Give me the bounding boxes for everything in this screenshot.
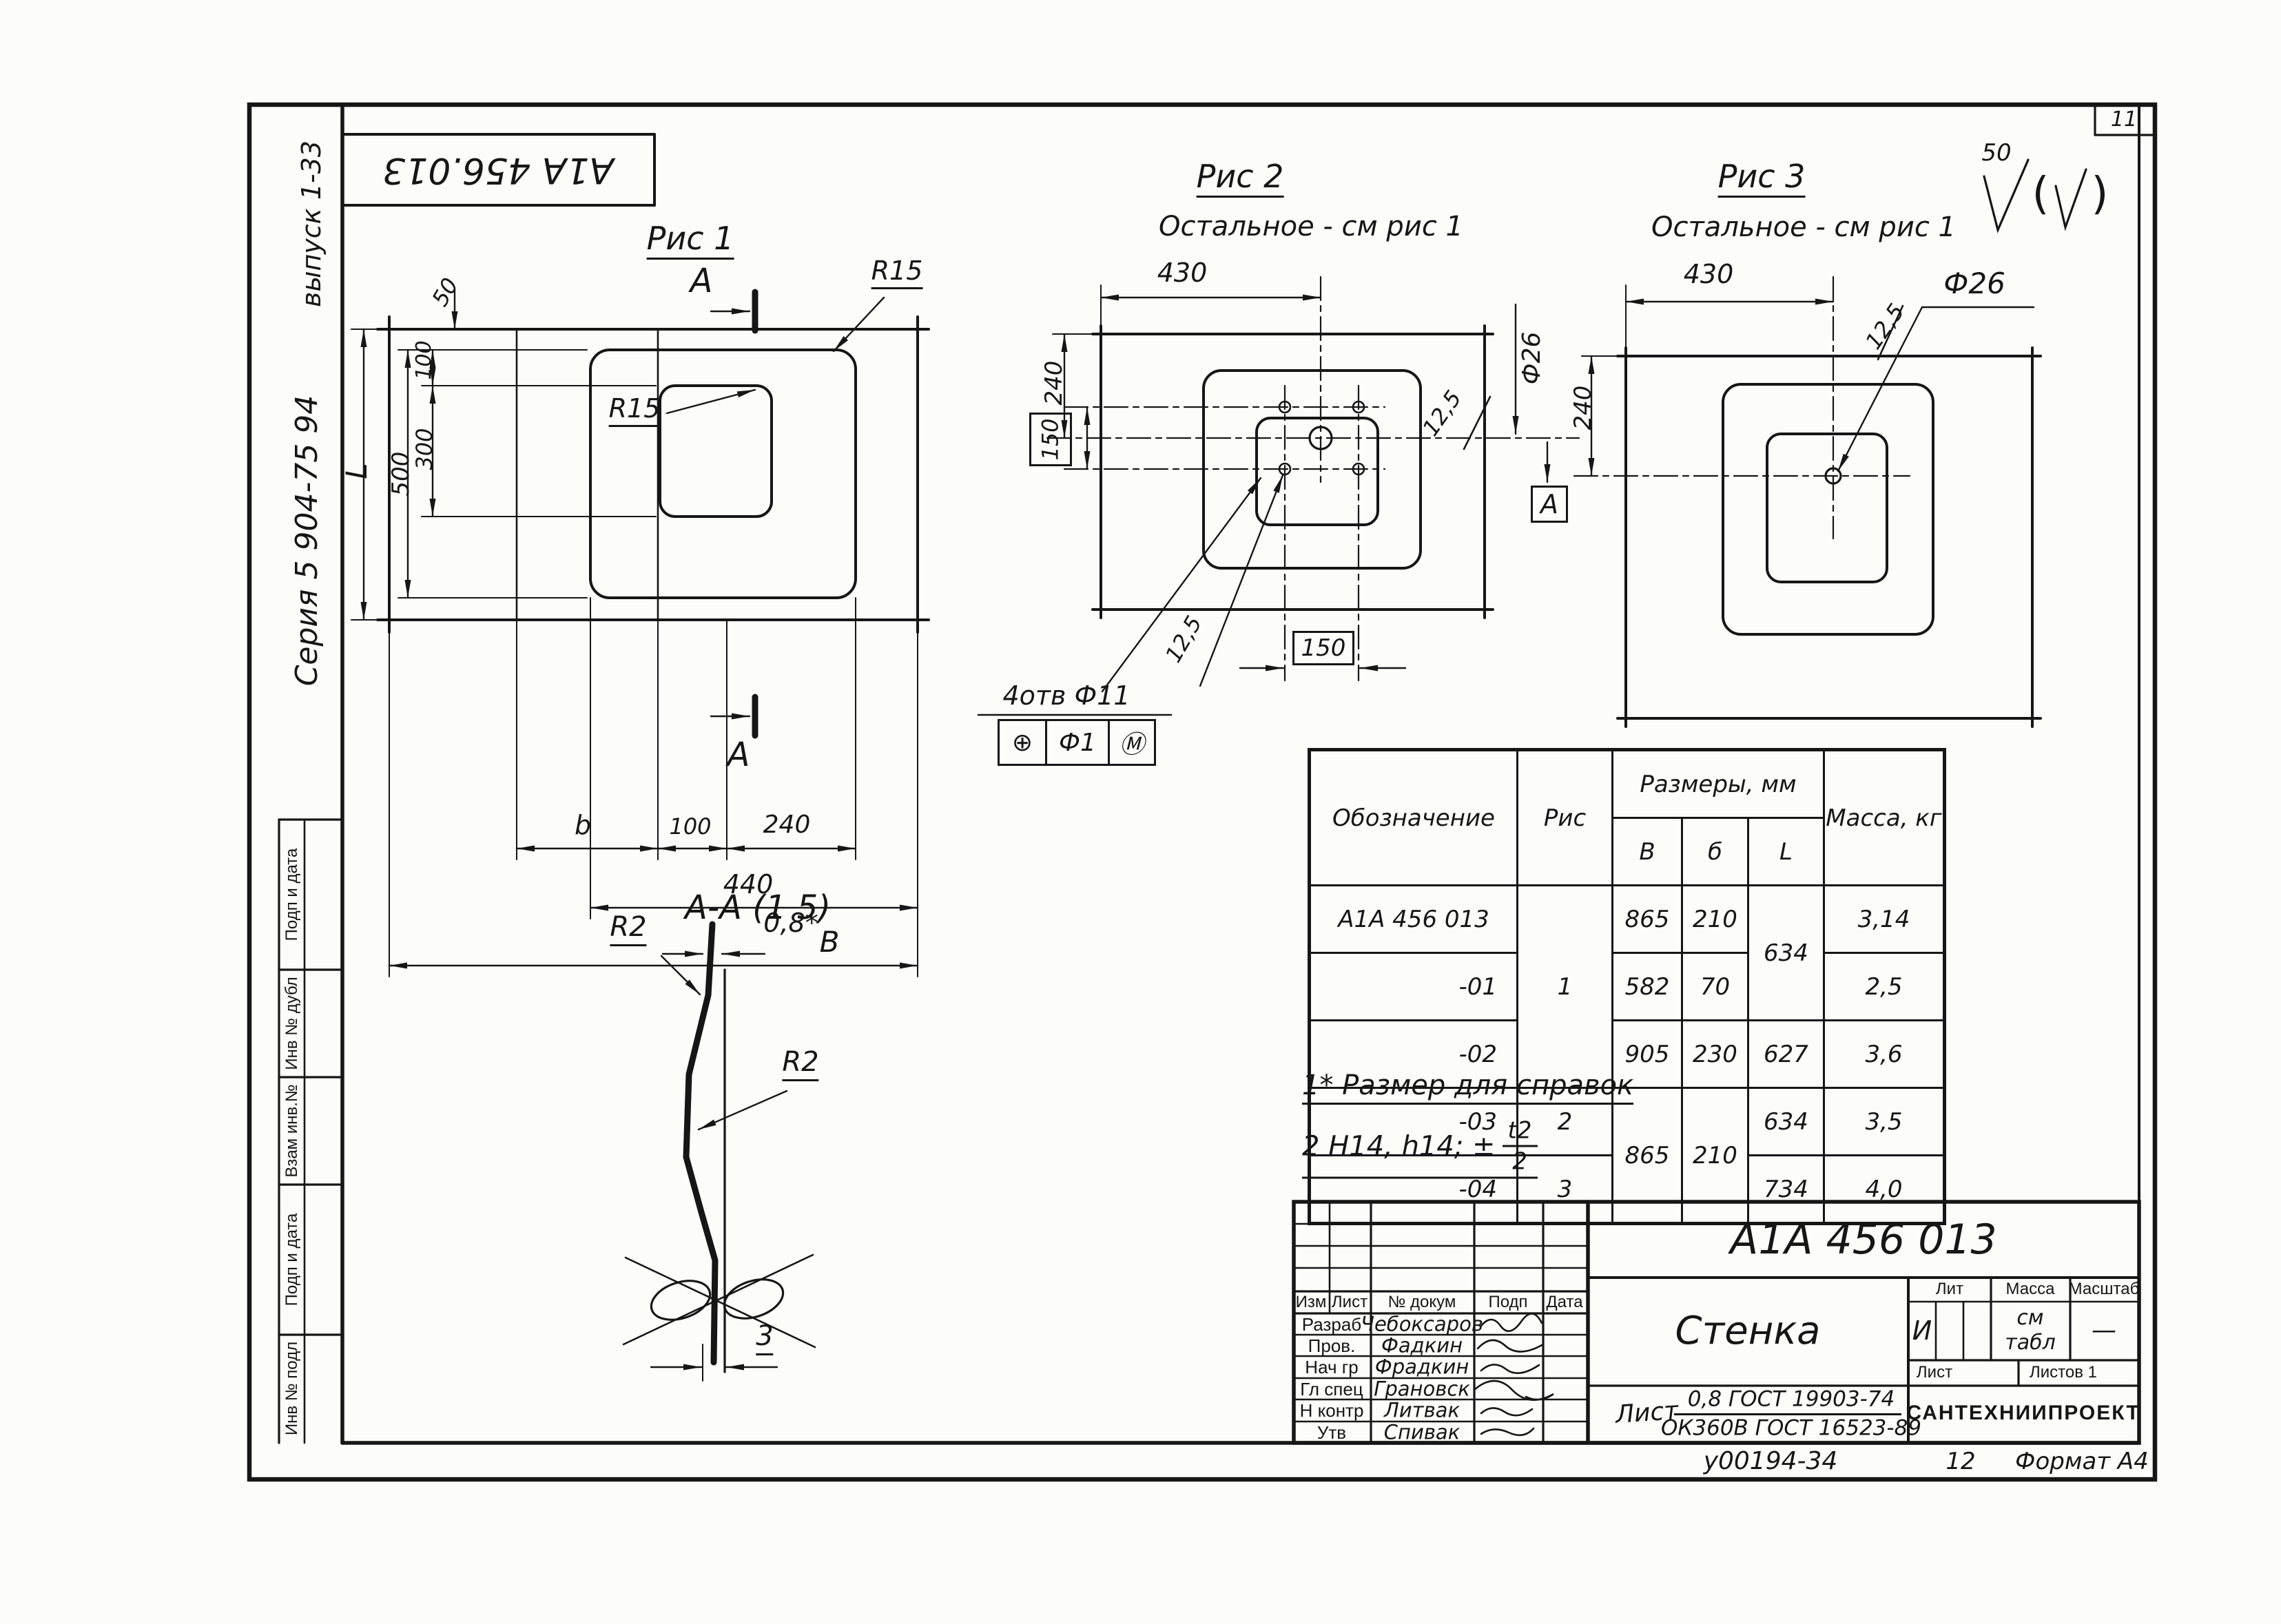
fig1-dim-100-bottom: 100 [669,815,711,837]
cell-mass: 2,5 [1824,953,1945,1021]
cell-designation: -03 [1310,1088,1518,1156]
position-tolerance-icon: ⊕ [1000,721,1045,764]
rev-header-date: Дата [1546,1294,1582,1311]
fig3-dim-430: 430 [1684,261,1734,287]
col-header-fig: Рис [1518,750,1613,886]
fig3-linework [1574,277,2041,727]
fig3-subtitle: Остальное - см рис 1 [1651,214,1956,241]
fig2-dia-26: Ф26 [1520,332,1545,385]
col-header-designation: Обозначение [1310,750,1518,886]
cell-b: 230 [1682,1021,1748,1088]
signature-scribbles [1474,1313,1554,1435]
top-stamp-doc-number: А1А 456.013 [382,152,614,188]
fcf-tolerance-value: Ф1 [1045,721,1108,764]
fig1-dim-300: 300 [413,428,435,470]
cell-B: 865 [1613,1088,1682,1224]
fig3-dia-26: Ф26 [1943,269,2005,298]
cell-mass: 3,6 [1824,1021,1945,1088]
fig1-title: Рис 1 [647,222,734,260]
col-header-dims: Размеры, мм [1613,750,1824,818]
sheet-label: Лист [1917,1364,1952,1381]
fig3-title: Рис 3 [1718,160,1806,198]
fig1-section-letter-bottom: А [727,738,750,771]
fig1-dim-b: b [575,812,591,838]
role-name: Чебоксаров [1361,1315,1483,1335]
fig2-dim-150-bottom-box: 150 [1292,631,1354,665]
fig1-dim-B: B [820,928,840,957]
cell-L: 627 [1748,1021,1824,1088]
material-bottom-line: ОК360В ГОСТ 16523-89 [1661,1418,1921,1439]
fig2-dim-150-bottom: 150 [1301,634,1346,662]
role-name: Спивак [1384,1423,1460,1443]
fig2-linework [978,277,1579,715]
role-label: Пров. [1308,1337,1356,1355]
cell-b: 210 [1682,886,1748,953]
part-name: Стенка [1675,1312,1821,1351]
cell-designation: -01 [1310,953,1518,1021]
scale-label: Масштаб [2069,1281,2140,1298]
stamp-box-label: Подп и дата [284,1214,300,1307]
fig1-radius-outer: R15 [871,258,923,289]
parts-table: Обозначение Рис Размеры, мм Масса, кг В … [1308,748,1946,1225]
drawing-sheet: А1А 456.013 выпуск 1-33 Серия 5 904-75 9… [0,0,2281,1624]
role-label: Нач гр [1305,1358,1358,1376]
cell-L: 734 [1748,1156,1824,1224]
cell-B: 582 [1613,953,1682,1021]
margin-series-label: Серия 5 904-75 94 [292,395,322,687]
fig2-dim-240: 240 [1042,361,1066,406]
rev-header-list: Лист [1332,1294,1367,1311]
material-condition-icon: Ⓜ [1108,721,1154,764]
cell-fig: 2 [1518,1088,1613,1156]
cell-mass: 4,0 [1824,1156,1945,1224]
fig2-holes-note: 4отв Ф11 [1002,683,1130,709]
role-label: Н контр [1300,1402,1364,1419]
section-aa-linework [623,924,815,1381]
cell-fig: 1 [1518,886,1613,1088]
col-header-mass: Масса, кг [1824,750,1945,886]
lit-value: И [1912,1318,1932,1344]
cell-designation: А1А 456 013 [1310,886,1518,953]
sheets-count-label: Листов 1 [2030,1364,2097,1381]
fig2-title: Рис 2 [1197,160,1284,198]
stamp-box-label: Инв № дубл [284,977,300,1070]
fig1-dim-100-top: 100 [414,340,435,379]
cell-mass: 3,14 [1824,886,1945,953]
cell-B: 905 [1613,1021,1682,1088]
cell-fig: 3 [1518,1156,1613,1224]
role-name: Фадкин [1381,1336,1463,1356]
fig2-section-letter: А [1540,489,1558,519]
finish-paren-close: ) [2092,172,2109,216]
fig3-dim-240: 240 [1571,386,1595,430]
cell-mass: 3,5 [1824,1088,1945,1156]
col-header-B: В [1613,818,1682,886]
cell-b: 70 [1682,953,1748,1021]
role-name: Грановск [1374,1380,1470,1399]
fig1-dim-500: 500 [389,452,413,497]
finish-value: 50 [1981,141,2011,165]
margin-issue-label: выпуск 1-33 [298,140,324,307]
table-row: -01 582 70 2,5 [1310,953,1945,1021]
cell-L: 634 [1748,886,1824,1021]
company-name: САНТЕХНИИПРОЕКТ [1906,1403,2140,1424]
lit-label: Лит [1936,1281,1963,1298]
scale-value: — [2092,1318,2116,1343]
fig1-section-letter-top: А [690,264,713,298]
aa-radius-mid: R2 [782,1048,818,1081]
role-name: Литвак [1384,1401,1460,1421]
mass-value-line2: табл [2005,1333,2056,1353]
aa-thickness: 0,8* [763,910,818,936]
rev-header-sign: Подп [1488,1294,1527,1311]
stamp-box-label: Взам инв.№ [284,1084,300,1177]
fig2-feature-control-frame: ⊕ Ф1 Ⓜ [998,719,1156,766]
table-row: -03 2 865 210 634 3,5 [1310,1088,1945,1156]
cell-L: 634 [1748,1088,1824,1156]
rev-header-doc: № докум [1388,1294,1456,1311]
role-label: Гл спец [1300,1380,1363,1398]
doc-number: А1А 456 013 [1730,1219,1996,1260]
page-number: 11 [2111,110,2137,130]
material-top-line: 0,8 ГОСТ 19903-74 [1688,1389,1895,1410]
cell-designation: -02 [1310,1021,1518,1088]
fig2-subtitle: Остальное - см рис 1 [1159,213,1463,240]
aa-radius-top: R2 [610,913,646,946]
fig2-dim-430: 430 [1157,260,1208,286]
cell-b: 210 [1682,1088,1748,1224]
rev-header-izm: Изм [1296,1294,1327,1311]
fig1-dim-240: 240 [763,813,811,837]
stamp-box-label: Подп и дата [284,849,300,941]
stamp-box-label: Инв № подл [284,1342,300,1435]
fig2-dim-150-side: 150 [1040,418,1062,460]
col-header-b: б [1682,818,1748,886]
fig1-linework [351,288,929,977]
aa-dim-3: 3 [756,1322,773,1355]
mass-label: Масса [2006,1281,2055,1298]
cell-B: 865 [1613,886,1682,953]
table-row: -02 905 230 627 3,6 [1310,1021,1945,1088]
fig2-dim-150-side-box: 150 [1029,413,1072,466]
footer-sheet-mark: 12 [1945,1450,1975,1473]
cell-designation: -04 [1310,1156,1518,1224]
mass-value-line1: см [2016,1308,2043,1329]
fig1-dim-L: L [342,463,371,479]
role-name: Фрадкин [1375,1357,1469,1377]
fig2-section-box: А [1531,486,1568,523]
table-row: А1А 456 013 1 865 210 634 3,14 [1310,886,1945,953]
footer-format: Формат А4 [2015,1450,2149,1473]
fig1-radius-inner: R15 [609,395,661,427]
role-label: Утв [1317,1424,1346,1441]
footer-inventory-number: у00194-34 [1704,1449,1838,1474]
finish-paren-open: ( [2032,172,2050,216]
col-header-L: L [1748,818,1824,886]
role-label: Разраб [1302,1315,1361,1333]
